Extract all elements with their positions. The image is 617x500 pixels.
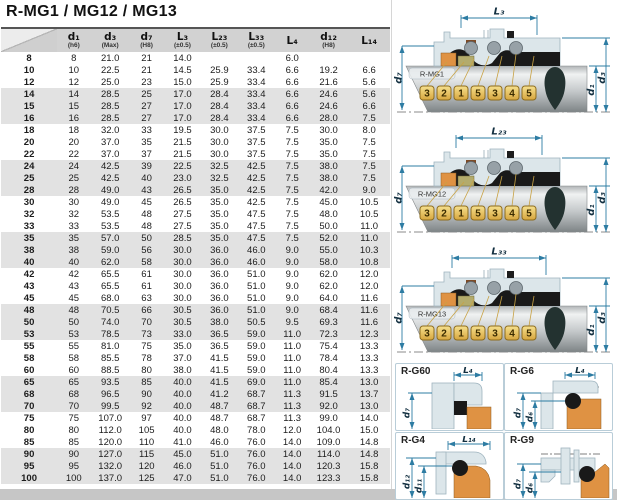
cell-value: 30.0: [202, 136, 237, 148]
cell-value: 76.0: [237, 436, 275, 448]
cell-value: 81.0: [90, 340, 130, 352]
cell-value: 10.5: [348, 196, 390, 208]
cell-value: 40.0: [163, 424, 201, 436]
cell-value: 38: [57, 244, 90, 256]
cell-value: 27.5: [163, 220, 201, 232]
table-row: 242442.53922.532.542.57.538.07.5: [1, 160, 390, 172]
cell-value: 41.5: [202, 376, 237, 388]
cell-value: 28.5: [163, 232, 201, 244]
cell-value: 32.0: [90, 124, 130, 136]
cell-value: 85.5: [90, 352, 130, 364]
table-row: 454568.06330.036.051.09.064.011.6: [1, 292, 390, 304]
cell-value: 112.0: [90, 424, 130, 436]
cell-value: 70: [130, 316, 163, 328]
cell-value: 46.0: [163, 460, 201, 472]
cell-size: 43: [1, 280, 57, 292]
cell-value: 27: [130, 112, 163, 124]
cell-value: 51.0: [237, 268, 275, 280]
cell-value: 45.0: [163, 448, 201, 460]
cell-size: 85: [1, 436, 57, 448]
cell-value: 49.0: [90, 184, 130, 196]
dim-label-left: d₇: [394, 312, 405, 324]
cell-value: 7.5: [276, 184, 309, 196]
table-row: 323253.54827.535.047.57.548.010.5: [1, 208, 390, 220]
diagram-r-mg12: R-MG12 3215345 L₂₃ d₇ d₁ d₃: [394, 122, 614, 240]
cell-value: 36.0: [202, 256, 237, 268]
cell-size: 15: [1, 100, 57, 112]
cell-value: 73: [130, 328, 163, 340]
cell-value: 107.0: [90, 412, 130, 424]
cell-value: 50: [57, 316, 90, 328]
cell-value: 51.0: [202, 472, 237, 484]
cell-value: 123.3: [309, 472, 349, 484]
cell-value: 26.5: [163, 184, 201, 196]
cell-value: 48.7: [202, 412, 237, 424]
cell-value: 41.2: [202, 388, 237, 400]
cell-value: 30.0: [202, 148, 237, 160]
cell-value: 37.5: [237, 136, 275, 148]
cell-value: 35.0: [202, 232, 237, 244]
cell-value: 11.6: [348, 304, 390, 316]
cell-value: 9.5: [276, 316, 309, 328]
cell-value: 42.5: [237, 196, 275, 208]
cell-value: 105: [130, 424, 163, 436]
cell-value: 30.5: [163, 316, 201, 328]
cell-value: 7.5: [276, 148, 309, 160]
cell-value: 53: [57, 328, 90, 340]
cell-size: 38: [1, 244, 57, 256]
cell-value: 48: [130, 208, 163, 220]
cell-value: 42: [57, 268, 90, 280]
cell-value: 58: [130, 256, 163, 268]
cell-value: 80.4: [309, 364, 349, 376]
cell-value: 21: [130, 52, 163, 64]
col-header-3: d₇(H8): [130, 28, 163, 52]
cell-value: 33: [130, 124, 163, 136]
table-row: 161628.52717.028.433.46.628.07.5: [1, 112, 390, 124]
cell-value: 132.0: [90, 460, 130, 472]
cell-value: 30: [57, 196, 90, 208]
callout-number: 5: [475, 89, 481, 100]
cell-value: 36.0: [202, 244, 237, 256]
cell-value: 40.0: [163, 376, 201, 388]
cell-value: 137.0: [90, 472, 130, 484]
spring: [488, 42, 501, 55]
table-row: 505074.07030.538.050.59.569.311.6: [1, 316, 390, 328]
cell-value: 41.5: [202, 364, 237, 376]
dim-label-l14: L₁₄: [462, 436, 476, 445]
cell-value: 9.0: [276, 304, 309, 316]
table-row: 404062.05830.036.046.09.058.010.8: [1, 256, 390, 268]
cell-value: 35.0: [202, 208, 237, 220]
cell-value: 68.7: [237, 412, 275, 424]
seat-ring: [441, 173, 456, 186]
cell-value: 30.0: [163, 280, 201, 292]
cell-value: 47.0: [163, 472, 201, 484]
cell-value: 60: [57, 364, 90, 376]
table-row: 101022.52114.525.933.46.619.26.6: [1, 64, 390, 76]
cell-size: 35: [1, 232, 57, 244]
dim-label-d7: d₇: [514, 479, 524, 489]
cell-value: 38.0: [163, 364, 201, 376]
cell-value: 109.0: [309, 436, 349, 448]
cell-value: 32.5: [202, 160, 237, 172]
cell-value: 41.0: [163, 436, 201, 448]
cell-value: 5.6: [348, 88, 390, 100]
gland-lip: [553, 381, 598, 393]
cell-value: 35.0: [202, 196, 237, 208]
cell-value: 13.0: [348, 376, 390, 388]
dim-label-top: L₃: [494, 7, 505, 18]
cell-size: 60: [1, 364, 57, 376]
cell-value: [237, 52, 275, 64]
cell-value: 100: [57, 472, 90, 484]
cell-value: 30.0: [163, 268, 201, 280]
cell-value: 7.5: [276, 196, 309, 208]
cell-value: 97: [130, 412, 163, 424]
cell-value: 68.7: [237, 400, 275, 412]
cell-value: 47.5: [237, 208, 275, 220]
cell-value: 7.5: [276, 124, 309, 136]
cell-value: 7.5: [348, 172, 390, 184]
cell-value: 15: [57, 100, 90, 112]
cell-value: 48: [57, 304, 90, 316]
panel-r-g6: R-G6 L₄ d₇ d₆: [504, 363, 613, 431]
table-row: 202037.03521.530.037.57.535.07.5: [1, 136, 390, 148]
cell-value: 88.5: [90, 364, 130, 376]
cell-value: 15.8: [348, 472, 390, 484]
header-row: d₁(h6)d₃(Max)d₇(H8)L₃(±0.5)L₂₃(±0.5)L₃₃(…: [1, 28, 390, 52]
cell-value: 59.0: [90, 244, 130, 256]
cell-value: 37.0: [90, 136, 130, 148]
diagram-label: R-MG13: [418, 310, 446, 319]
cell-value: 42.0: [309, 184, 349, 196]
cell-value: 49.0: [90, 196, 130, 208]
diagram-label: R-MG1: [420, 70, 444, 79]
table-row: 7575107.09740.048.768.711.399.014.0: [1, 412, 390, 424]
cell-value: 110: [130, 436, 163, 448]
cell-value: 7.5: [276, 208, 309, 220]
cell-value: 70: [57, 400, 90, 412]
cell-value: 38.0: [202, 316, 237, 328]
cell-value: 7.5: [348, 112, 390, 124]
dim-label-top: L₂₃: [491, 127, 507, 138]
table-row: 282849.04326.535.042.57.542.09.0: [1, 184, 390, 196]
dim-label-d6: d₆: [526, 412, 536, 422]
cell-size: 65: [1, 376, 57, 388]
dim-label-d1: d₁: [586, 84, 597, 96]
cell-value: 65.5: [90, 280, 130, 292]
cell-value: 15.0: [163, 76, 201, 88]
table-row: 303049.04526.535.042.57.545.010.5: [1, 196, 390, 208]
cell-size: 18: [1, 124, 57, 136]
cell-value: 62.0: [309, 280, 349, 292]
cell-value: 53.5: [90, 220, 130, 232]
cell-value: 48.0: [202, 424, 237, 436]
spring: [465, 282, 478, 295]
clamp-bar: [561, 448, 570, 484]
col-header-6: L₃₃(±0.5): [237, 28, 275, 52]
cell-size: 90: [1, 448, 57, 460]
callout-number: 5: [475, 329, 481, 340]
divider: [391, 0, 392, 489]
col-header-4: L₃(±0.5): [163, 28, 201, 52]
cell-value: 17.0: [163, 112, 201, 124]
cell-value: 36.0: [202, 280, 237, 292]
cell-value: 48.7: [202, 400, 237, 412]
cell-value: 120.0: [90, 436, 130, 448]
cell-value: 72.3: [309, 328, 349, 340]
cell-value: 104.0: [309, 424, 349, 436]
cell-value: 13.0: [348, 400, 390, 412]
panel-r-g60: R-G60 L₄ d₇: [395, 363, 504, 431]
callout-number: 3: [424, 209, 430, 220]
table-row: 707099.59240.048.768.711.392.013.0: [1, 400, 390, 412]
spring: [488, 282, 501, 295]
cell-value: 32.5: [202, 172, 237, 184]
seat-ring: [441, 53, 456, 66]
cell-value: 30.0: [163, 256, 201, 268]
cell-value: 15.0: [348, 424, 390, 436]
cell-value: 42.5: [237, 160, 275, 172]
cell-size: 22: [1, 148, 57, 160]
cell-value: 78.4: [309, 352, 349, 364]
cell-value: 30.0: [163, 244, 201, 256]
cell-value: 115: [130, 448, 163, 460]
cell-value: 35: [57, 232, 90, 244]
cell-value: 96.5: [90, 388, 130, 400]
cell-size: 20: [1, 136, 57, 148]
table-row: 141428.52517.028.433.46.624.65.6: [1, 88, 390, 100]
cell-value: 93.5: [90, 376, 130, 388]
cell-value: 55: [57, 340, 90, 352]
cell-value: 99.5: [90, 400, 130, 412]
cell-size: 100: [1, 472, 57, 484]
cell-value: 91.5: [309, 388, 349, 400]
diagram-r-mg1: R-MG1 3215345 L₃ d₇ d₁ d₃: [394, 2, 614, 120]
diagram-label: R-MG12: [418, 190, 446, 199]
callout-number: 4: [509, 329, 515, 340]
cell-value: 11.3: [276, 412, 309, 424]
cell-value: 39: [130, 160, 163, 172]
callout-number: 3: [424, 89, 430, 100]
dim-label-d11: d₁₁: [415, 479, 425, 493]
o-ring: [565, 393, 581, 409]
cell-value: 63: [130, 292, 163, 304]
dimensions-table: d₁(h6)d₃(Max)d₇(H8)L₃(±0.5)L₂₃(±0.5)L₃₃(…: [1, 27, 390, 484]
set-screw: [507, 31, 514, 38]
cell-value: 14.0: [163, 52, 201, 64]
cell-size: 75: [1, 412, 57, 424]
cell-value: 51.0: [237, 280, 275, 292]
cell-value: 21.5: [163, 136, 201, 148]
cell-value: 30.0: [309, 124, 349, 136]
table-row: 686896.59040.041.268.711.391.513.7: [1, 388, 390, 400]
cell-value: 35.0: [202, 184, 237, 196]
cell-value: 65: [57, 376, 90, 388]
cell-value: 75.4: [309, 340, 349, 352]
o-ring: [579, 466, 595, 482]
cell-value: 75: [57, 412, 90, 424]
cell-value: 19.5: [163, 124, 201, 136]
cell-value: 20: [57, 136, 90, 148]
page-title: R-MG1 / MG12 / MG13: [6, 3, 177, 21]
dim-label-l4: L₄: [575, 367, 585, 376]
cell-value: 27.5: [163, 208, 201, 220]
cell-value: 33.4: [237, 100, 275, 112]
cell-value: 78.5: [90, 328, 130, 340]
cell-value: 59.0: [237, 364, 275, 376]
col-header-2: d₃(Max): [90, 28, 130, 52]
dim-label-left: d₇: [394, 192, 405, 204]
cell-size: 10: [1, 64, 57, 76]
cell-value: 6.6: [276, 88, 309, 100]
cell-value: 48: [130, 220, 163, 232]
cell-value: 69.3: [309, 316, 349, 328]
dim-label-d1: d₁: [586, 204, 597, 216]
table-row: 606088.58038.041.559.011.080.413.3: [1, 364, 390, 376]
dim-label-d7: d₇: [403, 408, 413, 418]
callout-number: 3: [492, 329, 498, 340]
cell-value: 35.0: [309, 148, 349, 160]
cell-value: 11.0: [348, 220, 390, 232]
cell-value: 10: [57, 64, 90, 76]
callout-number: 2: [441, 329, 447, 340]
cell-value: 22: [57, 148, 90, 160]
cell-value: 33.4: [237, 64, 275, 76]
cell-value: 28.4: [202, 88, 237, 100]
cell-value: 25.0: [90, 76, 130, 88]
cell-value: 33.4: [237, 112, 275, 124]
cell-value: 90: [57, 448, 90, 460]
clamp-bar-2: [574, 450, 579, 482]
table-row: 555581.07535.036.559.011.075.413.3: [1, 340, 390, 352]
cell-value: [348, 52, 390, 64]
cell-value: 92: [130, 400, 163, 412]
cell-value: 13.3: [348, 364, 390, 376]
cell-value: 56: [130, 244, 163, 256]
cell-size: 25: [1, 172, 57, 184]
dim-label-d3: d₃: [597, 72, 608, 84]
cell-value: 64.0: [309, 292, 349, 304]
cell-value: 21.0: [90, 52, 130, 64]
cell-value: 11.0: [276, 352, 309, 364]
cell-value: 28: [57, 184, 90, 196]
cell-size: 14: [1, 88, 57, 100]
callout-number: 4: [509, 209, 515, 220]
cell-value: 68.0: [90, 292, 130, 304]
cell-value: 11.0: [276, 364, 309, 376]
cell-value: 37.5: [237, 124, 275, 136]
cell-value: 8: [57, 52, 90, 64]
cell-value: 75: [130, 340, 163, 352]
set-screw: [507, 151, 514, 158]
cell-value: 8.0: [348, 124, 390, 136]
cell-value: 52.0: [309, 232, 349, 244]
cell-value: 12: [57, 76, 90, 88]
cell-value: 22.5: [90, 64, 130, 76]
cell-value: 14.8: [348, 436, 390, 448]
table-row: 424265.56130.036.051.09.062.012.0: [1, 268, 390, 280]
spring: [510, 282, 523, 295]
cell-value: 22.5: [163, 160, 201, 172]
cell-value: 14.5: [163, 64, 201, 76]
cell-value: 6.6: [276, 112, 309, 124]
cell-value: 28.0: [309, 112, 349, 124]
cell-value: 6.6: [348, 100, 390, 112]
cell-value: 66: [130, 304, 163, 316]
cell-value: 80: [130, 364, 163, 376]
table-row: 100100137.012547.051.076.014.0123.315.8: [1, 472, 390, 484]
table-row: 353557.05028.535.047.57.552.011.0: [1, 232, 390, 244]
col-header-1: d₁(h6): [57, 28, 90, 52]
cell-value: 30.0: [163, 292, 201, 304]
cell-value: 51.0: [237, 304, 275, 316]
cell-value: 78.0: [237, 424, 275, 436]
cell-value: 6.6: [348, 64, 390, 76]
cell-value: 21: [130, 64, 163, 76]
table-row: 585885.57837.041.559.011.078.413.3: [1, 352, 390, 364]
dim-label-left: d₇: [394, 72, 405, 84]
cell-value: 51.0: [202, 448, 237, 460]
callout-number: 2: [441, 89, 447, 100]
callout-number: 1: [458, 209, 464, 220]
cell-value: 7.5: [348, 160, 390, 172]
cell-value: 36.0: [202, 268, 237, 280]
cell-value: 10.3: [348, 244, 390, 256]
cell-value: 120: [130, 460, 163, 472]
seat: [467, 407, 491, 429]
cell-value: 28.5: [90, 112, 130, 124]
spring: [465, 42, 478, 55]
cell-value: 43: [57, 280, 90, 292]
cell-value: 51.0: [237, 292, 275, 304]
col-header-size: [1, 28, 57, 52]
cell-value: 7.5: [276, 232, 309, 244]
dim-label-d6: d₆: [526, 483, 536, 493]
cell-value: 28.5: [90, 88, 130, 100]
cell-value: 11.0: [276, 328, 309, 340]
cell-value: 99.0: [309, 412, 349, 424]
cell-value: 10.8: [348, 256, 390, 268]
cell-value: 7.5: [348, 148, 390, 160]
table-row: 535378.57333.036.559.011.072.312.3: [1, 328, 390, 340]
cell-value: 25.9: [202, 64, 237, 76]
cell-value: 57.0: [90, 232, 130, 244]
cell-size: 12: [1, 76, 57, 88]
table-row: 181832.03319.530.037.57.530.08.0: [1, 124, 390, 136]
set-screw: [507, 271, 514, 278]
cell-value: 45: [57, 292, 90, 304]
cell-value: 36.5: [202, 328, 237, 340]
cell-value: 9.0: [276, 292, 309, 304]
o-ring: [452, 460, 468, 476]
cell-value: 24.6: [309, 88, 349, 100]
cell-size: 42: [1, 268, 57, 280]
cell-value: 32: [57, 208, 90, 220]
cell-value: 15.8: [348, 460, 390, 472]
cell-value: 48.0: [309, 208, 349, 220]
cell-value: 114.0: [309, 448, 349, 460]
cell-value: 11.6: [348, 292, 390, 304]
dim-label-d7: d₇: [514, 408, 524, 418]
cell-size: 33: [1, 220, 57, 232]
cell-value: 80: [57, 424, 90, 436]
cell-value: 38.0: [309, 172, 349, 184]
cell-value: 14.0: [348, 412, 390, 424]
cell-value: 21.5: [163, 148, 201, 160]
cell-value: 62.0: [90, 256, 130, 268]
